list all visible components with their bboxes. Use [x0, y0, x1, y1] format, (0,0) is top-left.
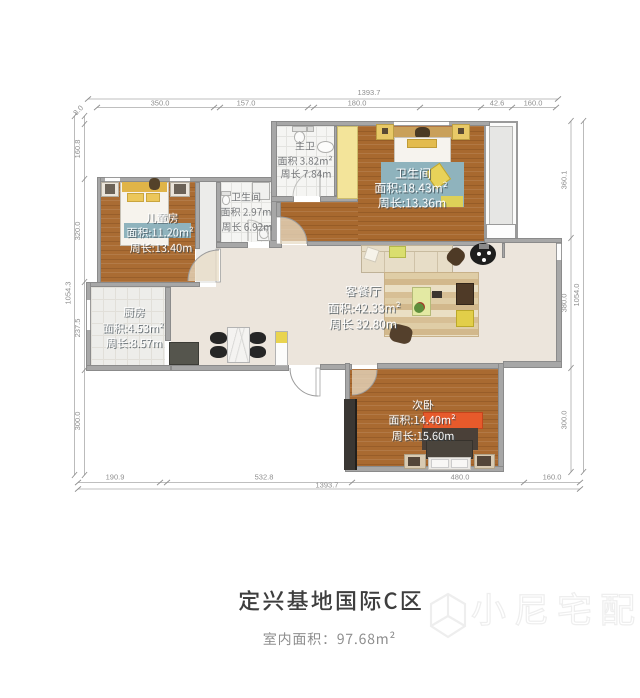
svg-text:190.9: 190.9 — [106, 473, 125, 482]
svg-text:350.0: 350.0 — [151, 99, 170, 108]
svg-text:360.1: 360.1 — [560, 171, 569, 190]
svg-text:380.0: 380.0 — [560, 294, 569, 313]
svg-text:480.0: 480.0 — [451, 473, 470, 482]
svg-text:8.0: 8.0 — [71, 103, 85, 117]
svg-text:1393.7: 1393.7 — [316, 481, 339, 490]
svg-text:157.0: 157.0 — [237, 99, 256, 108]
svg-text:160.0: 160.0 — [543, 473, 562, 482]
svg-text:1054.3: 1054.3 — [64, 282, 73, 305]
svg-text:160.0: 160.0 — [524, 99, 543, 108]
svg-text:1054.0: 1054.0 — [572, 284, 581, 307]
svg-text:180.0: 180.0 — [348, 99, 367, 108]
svg-text:300.0: 300.0 — [560, 411, 569, 430]
svg-text:42.6: 42.6 — [490, 99, 505, 108]
svg-text:1393.7: 1393.7 — [358, 88, 381, 97]
svg-text:532.8: 532.8 — [255, 473, 274, 482]
